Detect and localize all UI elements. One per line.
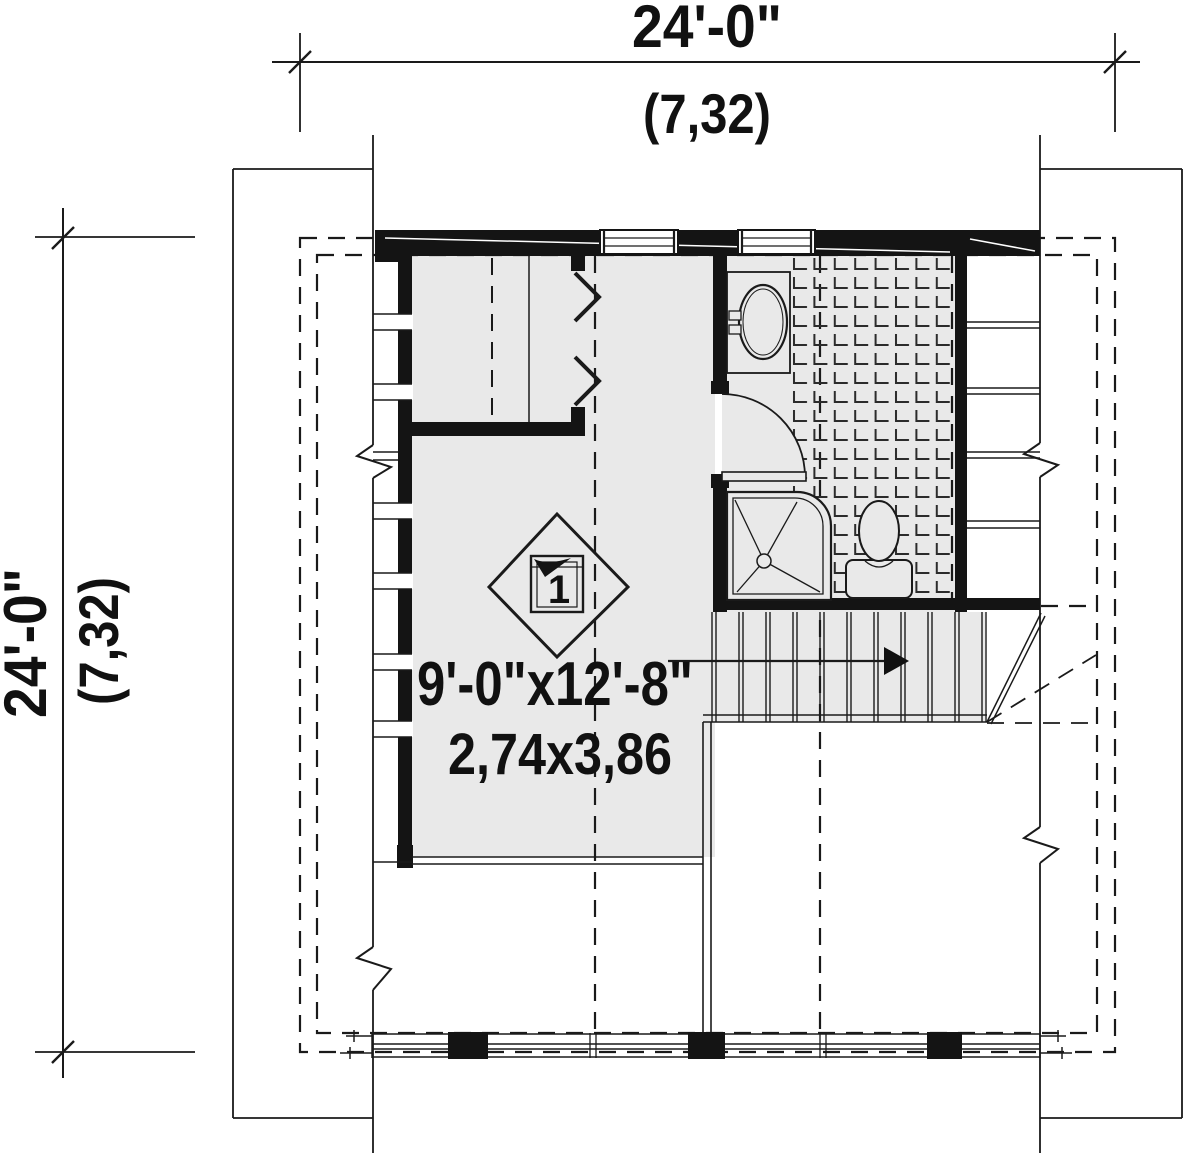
window-2 [738, 230, 815, 254]
left-dimension-imperial: 24'-0" [0, 568, 59, 718]
top-dimension-metric: (7,32) [643, 82, 771, 145]
bottom-window-wall [340, 1030, 1072, 1059]
sink-icon [727, 272, 790, 373]
top-dimension-imperial: 24'-0" [632, 0, 782, 60]
room-size-imperial: 9'-0"x12'-8" [417, 650, 693, 719]
room-size-label: 9'-0"x12'-8" 2,74x3,86 [417, 650, 693, 787]
space-tag-number: 1 [548, 568, 570, 612]
room-size-metric: 2,74x3,86 [448, 722, 672, 787]
dimension-left: 24'-0" (7,32) [0, 208, 195, 1078]
floor-plan-canvas: 1 24'-0" (7,32) 24'-0" (7,32) 9'-0"x12'-… [0, 0, 1200, 1169]
floor-plan-drawing: 1 24'-0" (7,32) 24'-0" (7,32) 9'-0"x12'-… [0, 0, 1200, 1169]
left-dimension-metric: (7,32) [67, 577, 130, 705]
window-posts [448, 1032, 962, 1059]
dimension-top: 24'-0" (7,32) [272, 0, 1140, 145]
window-1 [600, 230, 678, 254]
shower-icon [727, 492, 831, 600]
